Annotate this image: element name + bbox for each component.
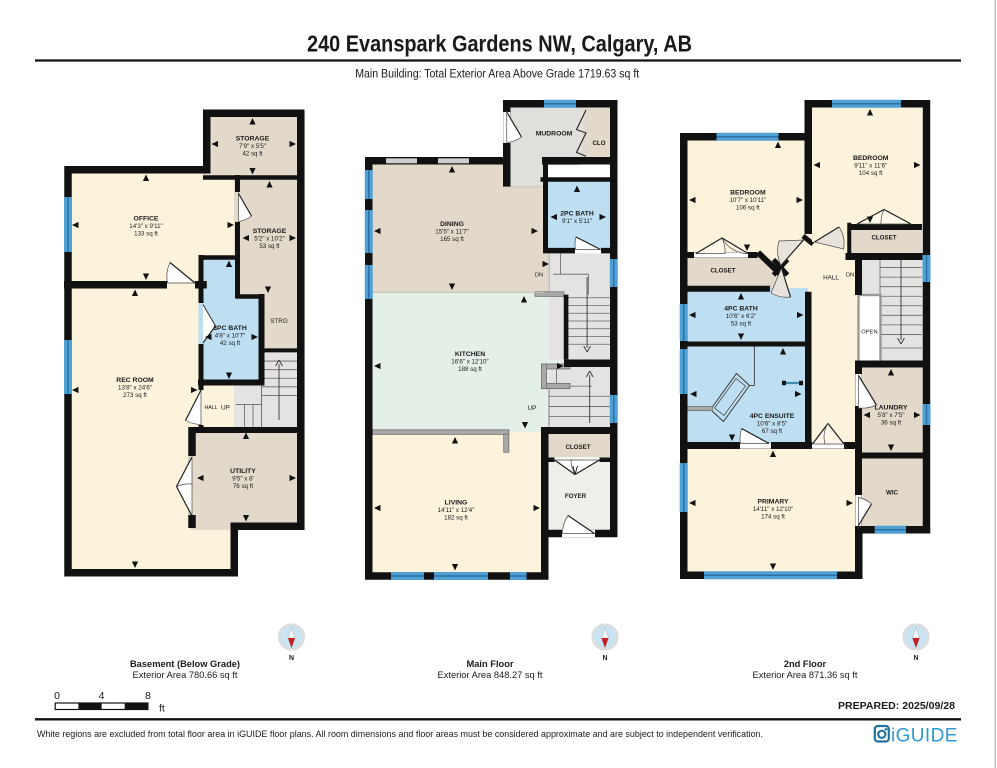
svg-text:REC ROOM: REC ROOM <box>116 377 154 384</box>
svg-text:DN: DN <box>535 273 543 279</box>
svg-text:2PC BATH: 2PC BATH <box>560 211 594 218</box>
svg-text:UP: UP <box>221 405 230 412</box>
svg-text:15'5" x 11'7": 15'5" x 11'7" <box>435 228 468 235</box>
svg-text:UTILITY: UTILITY <box>230 468 256 475</box>
svg-text:4PC ENSUITE: 4PC ENSUITE <box>750 413 795 420</box>
svg-text:iGUIDE: iGUIDE <box>891 726 958 747</box>
svg-text:2nd Floor: 2nd Floor <box>784 659 827 669</box>
svg-text:N: N <box>289 655 294 662</box>
svg-text:STORAGE: STORAGE <box>236 136 270 143</box>
svg-text:133 sq ft: 133 sq ft <box>134 230 158 237</box>
svg-text:104 sq ft: 104 sq ft <box>859 170 883 177</box>
svg-text:Exterior Area 848.27 sq ft: Exterior Area 848.27 sq ft <box>438 670 543 680</box>
svg-text:Basement (Below Grade): Basement (Below Grade) <box>130 659 240 669</box>
svg-text:53 sq ft: 53 sq ft <box>731 320 752 327</box>
svg-text:CLOSET: CLOSET <box>710 268 735 275</box>
svg-text:BEDROOM: BEDROOM <box>730 190 766 197</box>
svg-text:CLO: CLO <box>592 140 605 147</box>
svg-text:BEDROOM: BEDROOM <box>853 155 889 162</box>
svg-text:240 Evanspark Gardens NW, Calg: 240 Evanspark Gardens NW, Calgary, AB <box>307 31 692 57</box>
svg-text:8: 8 <box>145 690 151 702</box>
svg-text:ft: ft <box>159 703 165 715</box>
svg-text:7'9" x 5'5": 7'9" x 5'5" <box>239 143 266 150</box>
svg-text:9'1" x 5'11": 9'1" x 5'11" <box>562 218 592 225</box>
svg-text:3PC BATH: 3PC BATH <box>213 325 247 332</box>
svg-text:MUDROOM: MUDROOM <box>536 131 573 138</box>
svg-text:76 sq ft: 76 sq ft <box>233 483 254 490</box>
svg-text:DINING: DINING <box>440 221 464 228</box>
svg-text:CLOSET: CLOSET <box>871 235 896 242</box>
svg-text:10'7" x 10'11": 10'7" x 10'11" <box>729 197 766 204</box>
svg-text:10'6" x 8'5": 10'6" x 8'5" <box>757 420 788 427</box>
svg-text:Exterior Area 780.66 sq ft: Exterior Area 780.66 sq ft <box>133 670 238 680</box>
svg-text:LIVING: LIVING <box>445 500 468 507</box>
svg-text:9'5" x 8': 9'5" x 8' <box>232 475 253 482</box>
svg-text:42 sq ft: 42 sq ft <box>242 150 263 157</box>
svg-text:10'6" x 6'2": 10'6" x 6'2" <box>726 313 757 320</box>
svg-text:KITCHEN: KITCHEN <box>455 351 485 358</box>
svg-text:HALL: HALL <box>823 275 839 282</box>
svg-text:9'11" x 11'6": 9'11" x 11'6" <box>854 162 887 169</box>
svg-text:UP: UP <box>528 405 537 412</box>
svg-text:N: N <box>913 655 918 662</box>
svg-text:182 sq ft: 182 sq ft <box>444 514 468 521</box>
svg-text:188 sq ft: 188 sq ft <box>458 366 482 373</box>
svg-text:273 sq ft: 273 sq ft <box>123 392 147 399</box>
svg-text:OFFICE: OFFICE <box>134 216 159 223</box>
svg-text:4: 4 <box>99 690 105 702</box>
svg-text:106 sq ft: 106 sq ft <box>736 204 760 211</box>
svg-text:67 sq ft: 67 sq ft <box>762 428 783 435</box>
svg-text:FOYER: FOYER <box>565 493 587 500</box>
svg-text:165 sq ft: 165 sq ft <box>440 236 464 243</box>
svg-text:Main Building: Total Exterior: Main Building: Total Exterior Area Above… <box>355 67 639 81</box>
svg-text:42 sq ft: 42 sq ft <box>220 340 241 347</box>
svg-text:HALL: HALL <box>205 405 218 411</box>
svg-text:White regions are excluded fro: White regions are excluded from total fl… <box>37 729 763 740</box>
svg-text:13'8" x 24'6": 13'8" x 24'6" <box>118 384 152 391</box>
svg-text:N: N <box>602 655 607 662</box>
svg-text:Exterior Area 871.36 sq ft: Exterior Area 871.36 sq ft <box>753 670 858 680</box>
svg-text:36 sq ft: 36 sq ft <box>881 419 902 426</box>
svg-text:16'6" x 12'10": 16'6" x 12'10" <box>451 358 488 365</box>
svg-text:14'11" x 12'10": 14'11" x 12'10" <box>753 506 793 513</box>
svg-text:PREPARED: 2025/09/28: PREPARED: 2025/09/28 <box>838 701 955 712</box>
svg-text:STORAGE: STORAGE <box>253 228 287 235</box>
svg-text:STRG: STRG <box>270 318 288 325</box>
svg-text:CLOSET: CLOSET <box>565 444 590 451</box>
svg-text:14'3" x 9'11": 14'3" x 9'11" <box>129 223 162 230</box>
svg-text:4PC BATH: 4PC BATH <box>724 306 758 313</box>
svg-text:OPEN: OPEN <box>861 330 877 336</box>
svg-text:0: 0 <box>54 690 60 702</box>
svg-text:DN: DN <box>846 273 854 279</box>
svg-text:14'11" x 12'4": 14'11" x 12'4" <box>438 507 475 514</box>
svg-text:PRIMARY: PRIMARY <box>757 499 789 506</box>
svg-text:LAUNDRY: LAUNDRY <box>875 405 908 412</box>
svg-text:Main Floor: Main Floor <box>467 659 514 669</box>
svg-text:WIC: WIC <box>886 490 899 497</box>
svg-text:5'8" x 7'5": 5'8" x 7'5" <box>877 412 904 419</box>
svg-text:5'2" x 10'2": 5'2" x 10'2" <box>254 235 285 242</box>
svg-text:4'8" x 10'7": 4'8" x 10'7" <box>215 332 246 339</box>
svg-text:174 sq ft: 174 sq ft <box>761 513 785 520</box>
svg-text:53 sq ft: 53 sq ft <box>259 243 280 250</box>
